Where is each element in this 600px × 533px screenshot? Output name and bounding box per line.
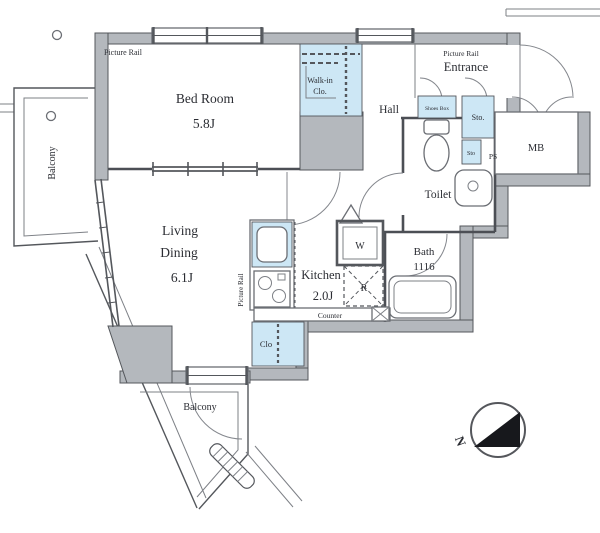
floor-plan-canvas: N Picture Rail Bed Room 5.8J Walk-in Clo…	[0, 0, 600, 533]
toilet-label: Toilet	[425, 189, 452, 201]
bottom-balcony-label: Balcony	[183, 402, 216, 413]
picture-rail-label-entrance: Picture Rail	[443, 49, 479, 58]
bedroom-sliding-door	[152, 162, 258, 176]
walk-in-closet-label-2: Clo.	[313, 87, 327, 96]
bedroom-size: 5.8J	[193, 116, 215, 131]
counter-label: Counter	[318, 311, 343, 320]
kitchen-name: Kitchen	[301, 268, 341, 282]
storage-small-label: Sto	[467, 151, 475, 157]
floor-plan: N Picture Rail Bed Room 5.8J Walk-in Clo…	[0, 0, 600, 533]
bath-name: Bath	[414, 246, 435, 258]
kitchen-size: 2.0J	[313, 289, 334, 303]
evacuation-hatch-icon	[207, 441, 256, 490]
refrigerator-label: R	[361, 283, 368, 294]
corner-wall-block	[108, 326, 172, 383]
left-balcony	[14, 31, 98, 247]
compass: N	[452, 403, 525, 457]
entrance-door-opening	[506, 45, 521, 98]
pipe-space-box	[372, 307, 389, 321]
toilet-tank	[424, 120, 449, 134]
storage-large-label: Sto.	[472, 113, 485, 122]
washbasin	[455, 170, 492, 206]
pipe-space-label: PS	[489, 152, 497, 161]
shoes-box-label: Shoes Box	[425, 106, 449, 112]
living-diagonal-window	[95, 179, 119, 327]
walk-in-closet-label-1: Walk-in	[307, 76, 333, 85]
bath-size: 1116	[413, 261, 435, 273]
toilet-bowl	[424, 135, 449, 171]
bathtub	[389, 276, 456, 318]
picture-rail-label-kitchen: Picture Rail	[237, 273, 245, 306]
hall-label: Hall	[379, 104, 399, 116]
entrance-label: Entrance	[444, 60, 489, 74]
living-dining-name-1: Living	[162, 223, 198, 238]
pillar-block	[300, 112, 363, 170]
bedroom-name: Bed Room	[176, 91, 235, 106]
meter-box-label: MB	[528, 143, 544, 154]
left-balcony-label: Balcony	[47, 146, 58, 179]
bath-fixtures	[389, 276, 456, 318]
kitchen-unit	[250, 220, 295, 310]
living-dining-size: 6.1J	[171, 270, 193, 285]
living-dining-name-2: Dining	[160, 245, 198, 260]
balcony-sliding-door	[186, 366, 248, 385]
kitchen-sink	[257, 227, 287, 262]
picture-rail-label-bedroom: Picture Rail	[104, 48, 143, 57]
compass-north-label: N	[452, 434, 470, 449]
bedroom-window	[152, 27, 263, 44]
washer-label: W	[355, 241, 365, 252]
hall-window	[356, 28, 414, 43]
closet-label: Clo	[260, 339, 272, 349]
